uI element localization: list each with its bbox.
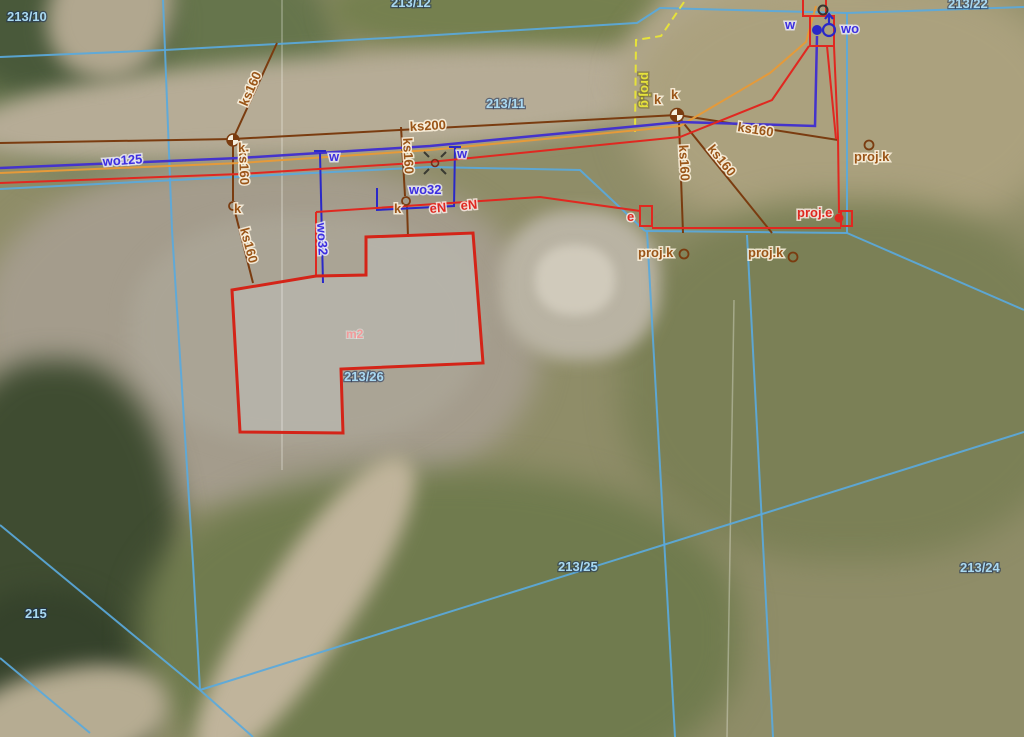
parcel-label: 213/26 bbox=[344, 369, 384, 384]
electric-box-symbol bbox=[640, 206, 652, 226]
sewer-size-label: ks160 bbox=[237, 226, 261, 265]
sewer-point-label: k bbox=[394, 201, 402, 216]
water-point-label: w bbox=[328, 149, 340, 164]
water-point-label: wo bbox=[840, 21, 859, 36]
sewer-connection-icon bbox=[402, 197, 410, 205]
parcel-label: 215 bbox=[25, 606, 47, 621]
water-point-label: w bbox=[456, 146, 468, 161]
sewer-size-label: ks160 bbox=[236, 69, 264, 108]
parcel-label: 213/12 bbox=[391, 0, 431, 10]
sewer-manhole-icon bbox=[671, 109, 684, 122]
sewer-size-label: ks200 bbox=[409, 117, 446, 134]
planned-sewer-point-icon bbox=[789, 253, 798, 262]
sewer-point-label: k bbox=[238, 140, 246, 155]
sewer-point-label: k bbox=[234, 201, 242, 216]
sewer-size-label: ks160 bbox=[705, 141, 739, 179]
parcel-label: 213/10 bbox=[7, 9, 47, 24]
sewer-point-label: k bbox=[671, 87, 679, 102]
sewer-size-label: ks160 bbox=[737, 119, 775, 139]
sewer-size-label: ks160 bbox=[400, 137, 417, 174]
water-valve-icon bbox=[812, 25, 822, 35]
sewer-size-label: ks160 bbox=[676, 144, 693, 181]
electric-line-label: eN bbox=[429, 200, 447, 216]
parcel-label: 213/11 bbox=[486, 96, 525, 111]
water-point-label: w bbox=[784, 17, 796, 32]
parcel-label: 213/24 bbox=[960, 560, 1001, 575]
parcel-label: 213/22 bbox=[948, 0, 988, 11]
water-size-label: wo32 bbox=[314, 221, 331, 255]
sewer-point-label: k bbox=[654, 92, 662, 107]
planned-sewer-label: proj.k bbox=[638, 245, 674, 260]
water-size-label: wo125 bbox=[101, 151, 143, 169]
planned-sewer-label: proj.k bbox=[748, 245, 784, 260]
planned-electric-point-icon bbox=[835, 214, 844, 223]
planned-electric-label: proj.e bbox=[797, 205, 832, 220]
electric-line-label: eN bbox=[460, 197, 478, 213]
building-area-label: m2 bbox=[346, 327, 364, 341]
planned-sewer-label: proj.k bbox=[854, 149, 890, 164]
aerial-map[interactable]: 213/10 213/12 213/11 213/22 213/26 213/2… bbox=[0, 0, 1024, 737]
planned-gas-label: proj.g bbox=[638, 72, 653, 108]
electric-point-label: e bbox=[627, 209, 634, 224]
parcel-labels: 213/10 213/12 213/11 213/22 213/26 213/2… bbox=[7, 0, 1001, 621]
parcel-label: 213/25 bbox=[558, 559, 598, 574]
planned-sewer-point-icon bbox=[680, 250, 689, 259]
utility-labels: ks200 ks160 ks160 ks160 ks160 ks160 ks16… bbox=[101, 17, 890, 341]
water-size-label: wo32 bbox=[408, 182, 442, 197]
